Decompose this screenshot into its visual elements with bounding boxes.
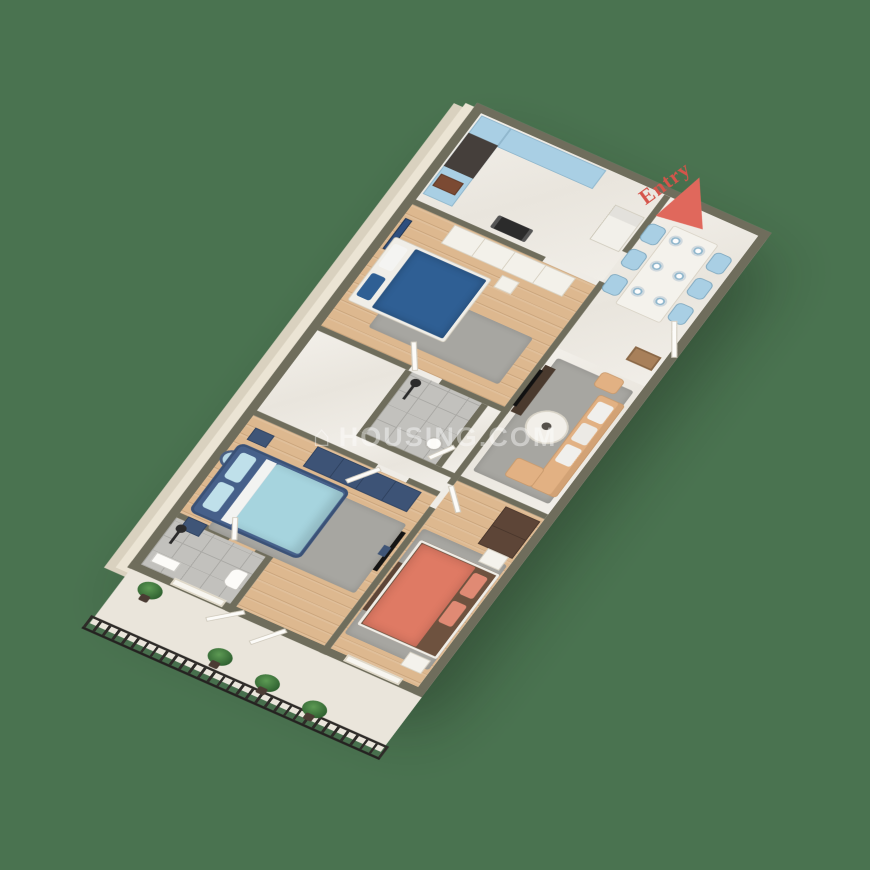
entry-door bbox=[671, 321, 677, 358]
house-icon: ⌂ bbox=[313, 420, 333, 454]
door bbox=[231, 517, 238, 540]
floor-plan-scene: Entry ⌂ HOUSING.COM bbox=[0, 0, 870, 870]
watermark-text: HOUSING.COM bbox=[339, 422, 558, 453]
watermark: ⌂ HOUSING.COM bbox=[313, 420, 558, 454]
door bbox=[411, 342, 418, 371]
